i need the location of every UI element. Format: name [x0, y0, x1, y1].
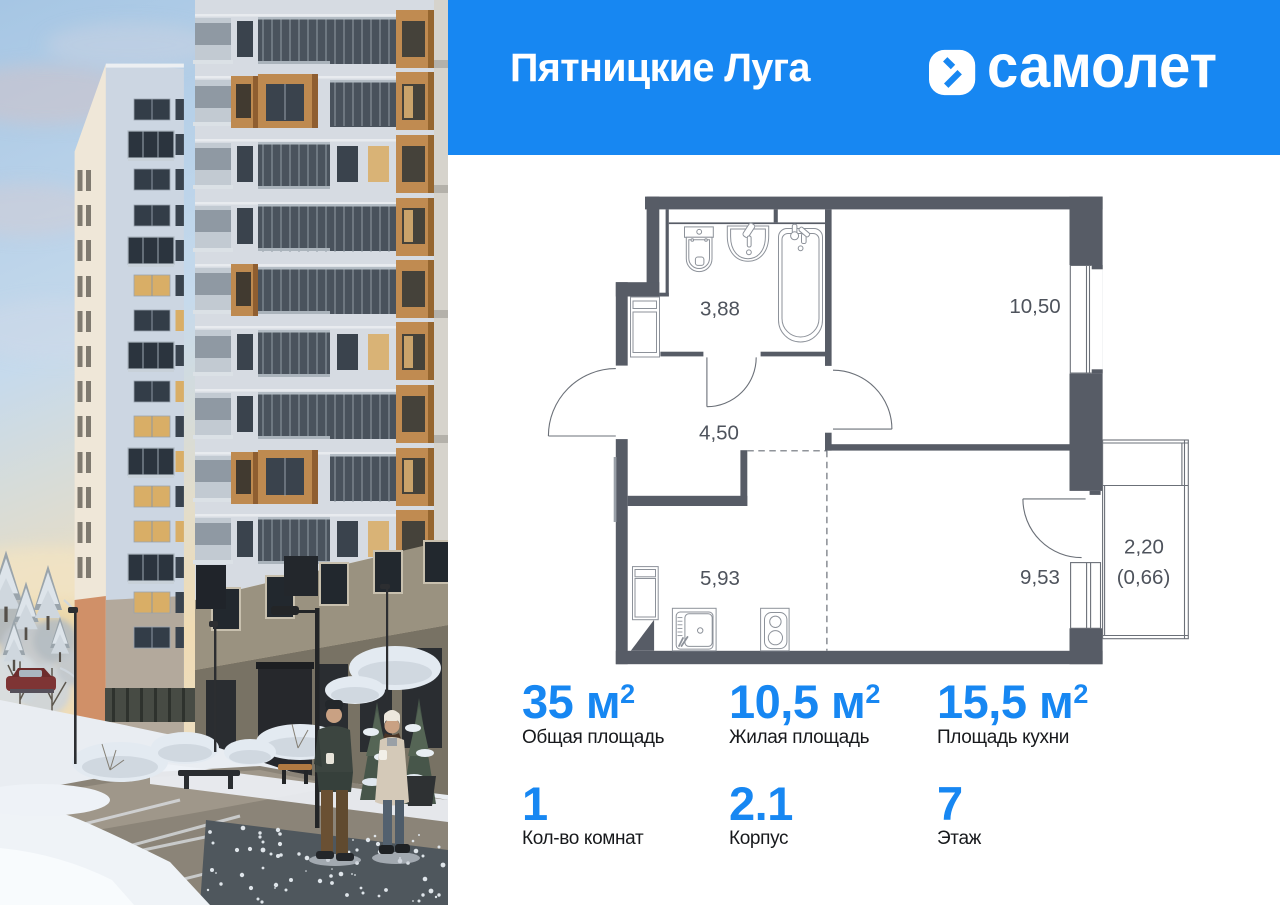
svg-text:5,93: 5,93	[700, 567, 740, 590]
svg-text:самолет: самолет	[987, 44, 1217, 100]
svg-text:2,20: 2,20	[1124, 536, 1164, 559]
svg-text:10,50: 10,50	[1009, 295, 1060, 318]
svg-text:4,50: 4,50	[699, 421, 739, 444]
svg-text:3,88: 3,88	[700, 298, 740, 321]
svg-text:9,53: 9,53	[1020, 566, 1060, 589]
svg-text:(0,66): (0,66)	[1117, 566, 1171, 589]
